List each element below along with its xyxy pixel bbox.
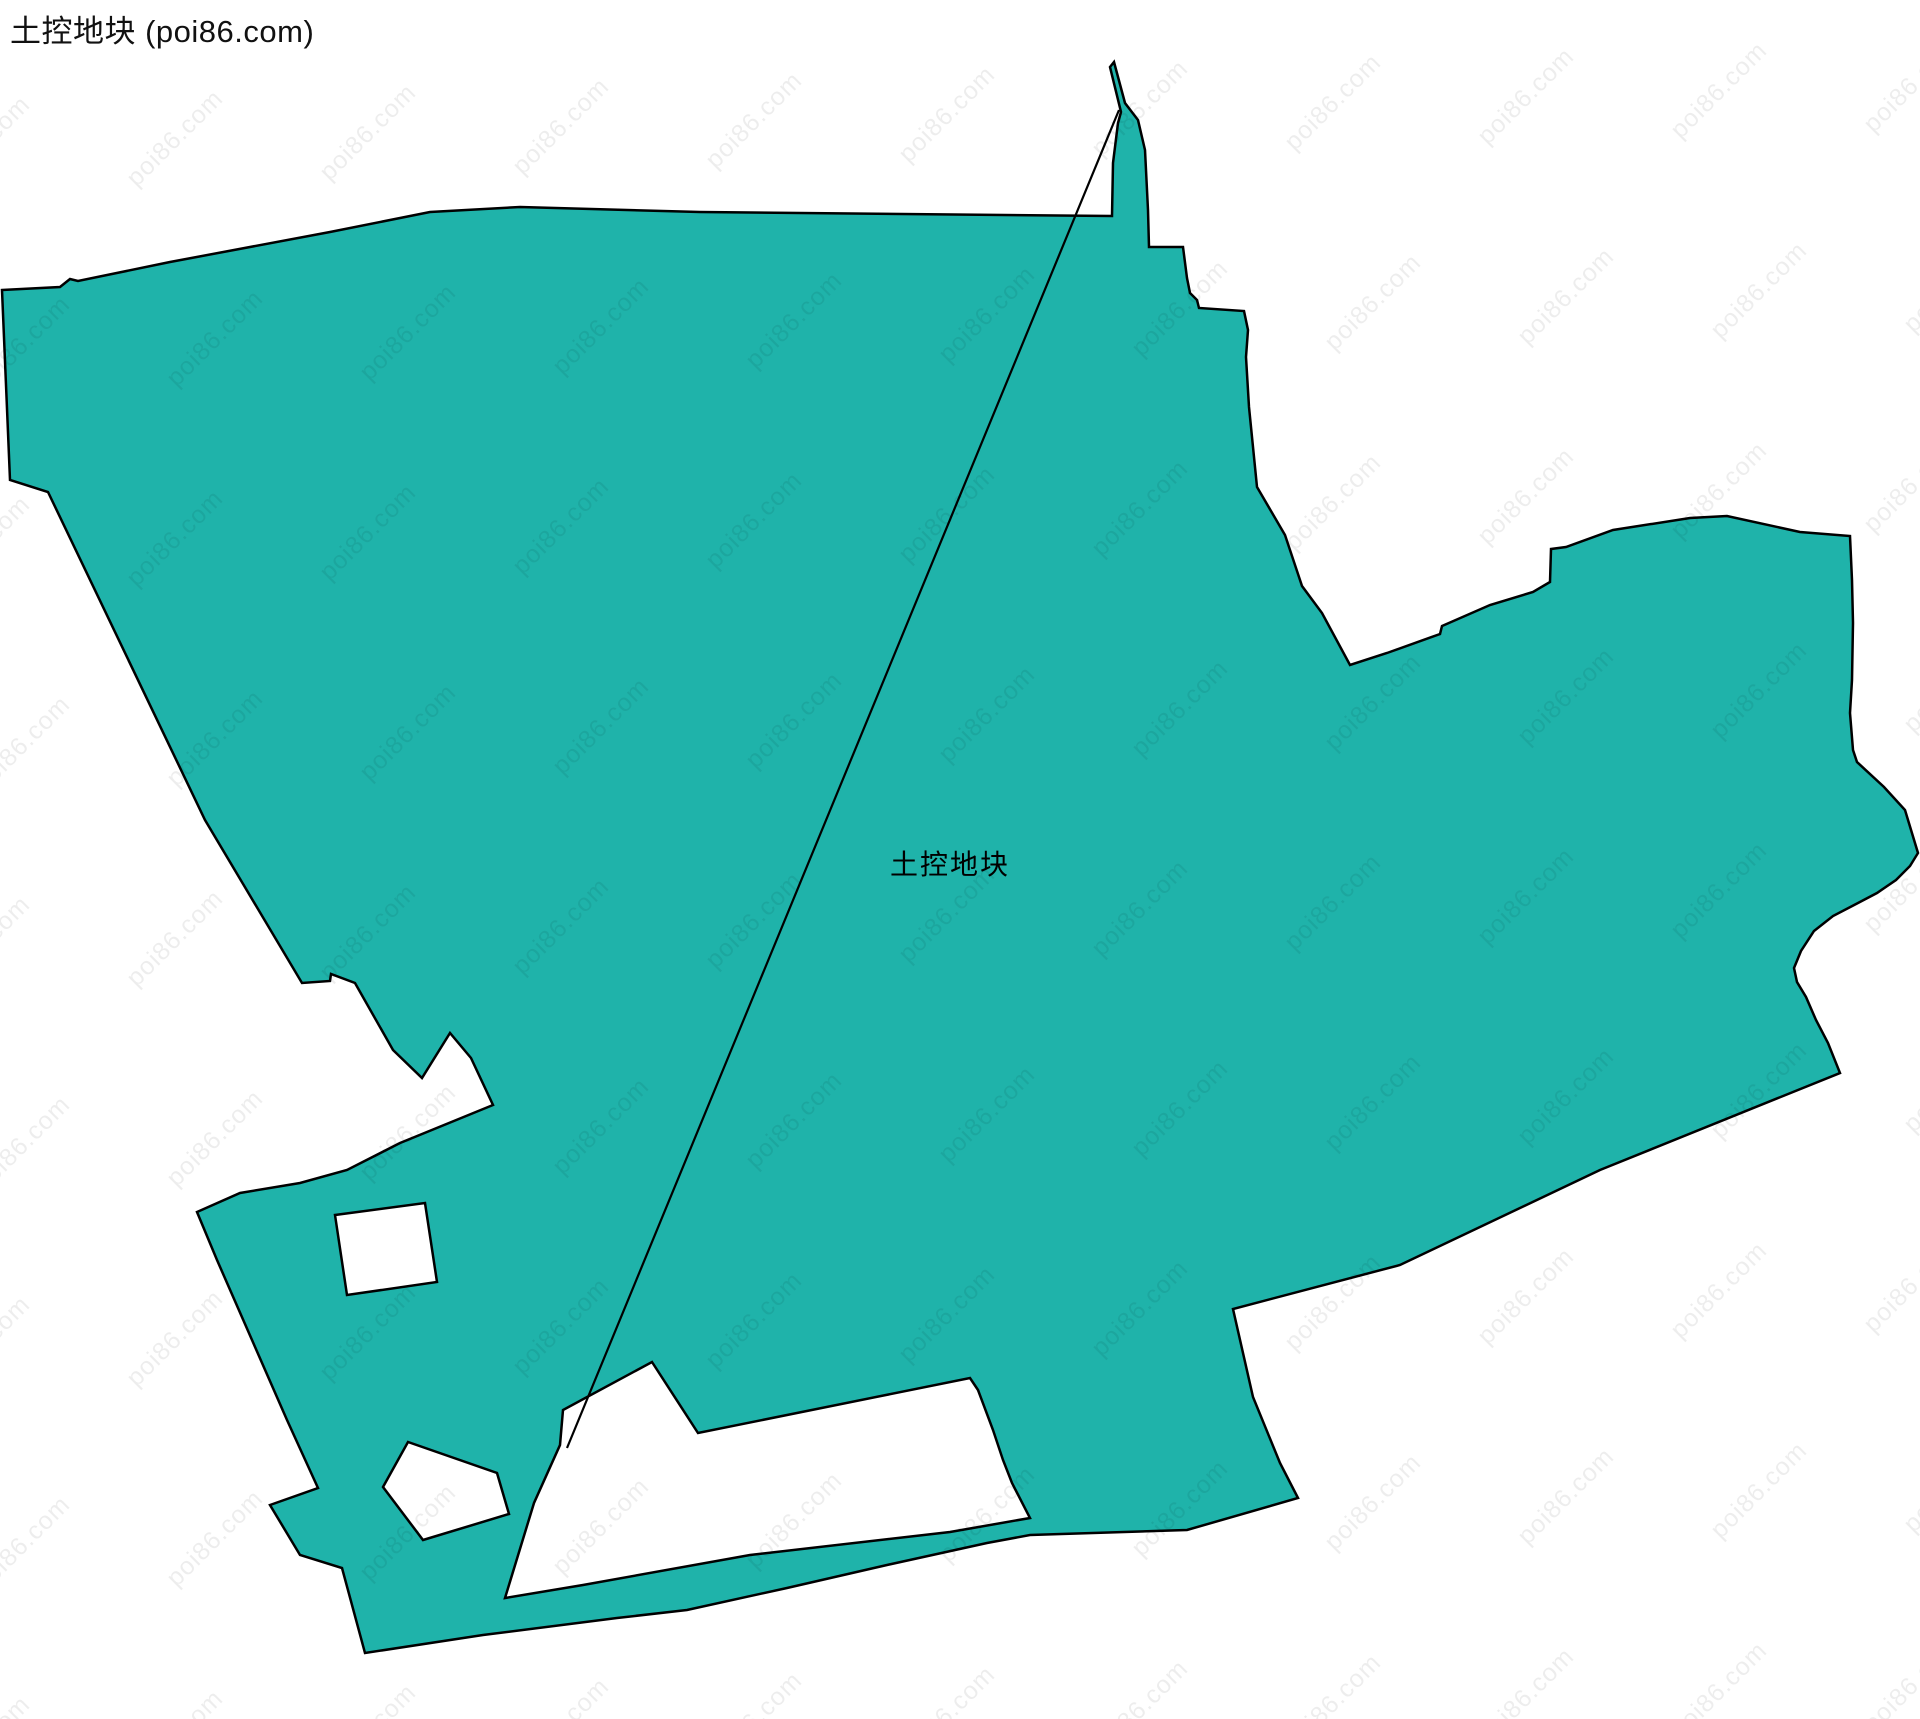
- left-notch-small: [335, 1203, 437, 1295]
- page-title: 土控地块 (poi86.com): [10, 6, 314, 51]
- parcel-label: 土控地块: [890, 843, 1010, 883]
- map-page: poi86.compoi86.compoi86.compoi86.compoi8…: [0, 0, 1920, 1719]
